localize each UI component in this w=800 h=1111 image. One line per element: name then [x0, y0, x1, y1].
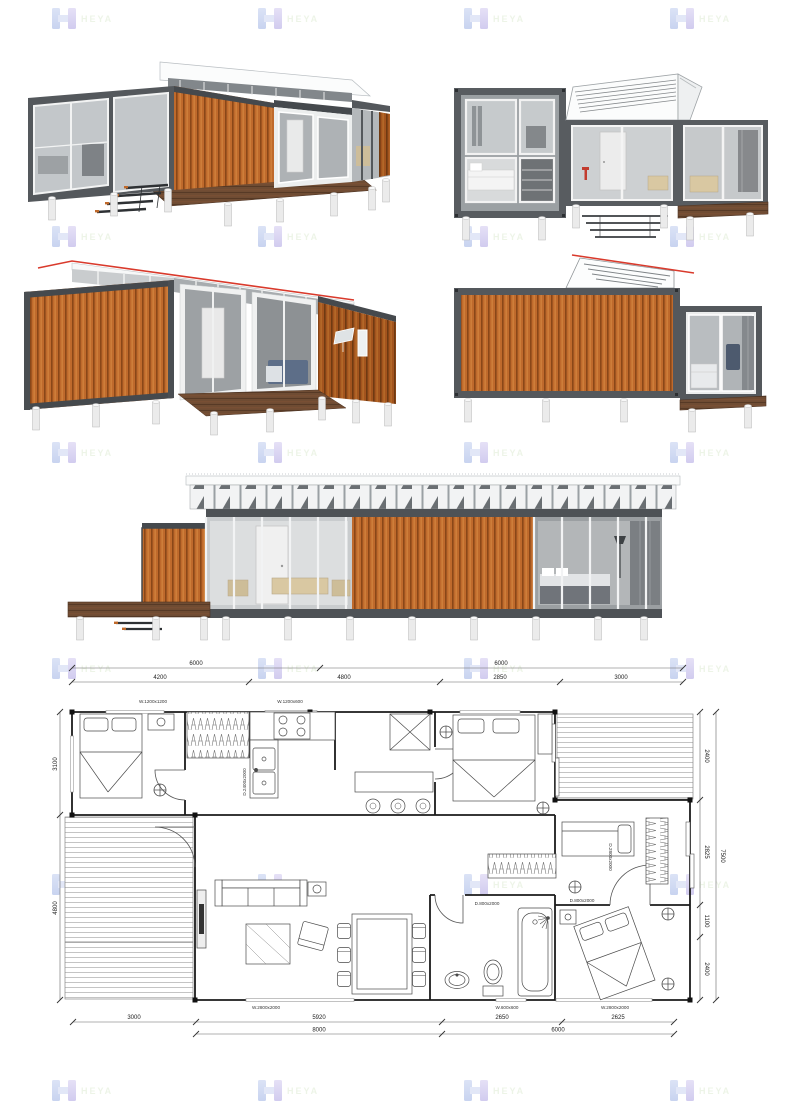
- dim-label: 5920: [312, 1015, 326, 1021]
- nightstand: [148, 714, 174, 730]
- window-label: W.2800x2000: [601, 1005, 630, 1010]
- toilet-tank: [483, 986, 503, 996]
- bedroom-3: [560, 907, 674, 1000]
- brand-logo-icon: [258, 442, 282, 463]
- clerestory-popup: [566, 255, 694, 288]
- dim-label: 2825: [703, 845, 709, 859]
- top-rail: [206, 509, 662, 517]
- brand-name: HEYA: [287, 448, 319, 458]
- sink-basin: [253, 772, 275, 794]
- brand-watermark: HEYA: [464, 8, 525, 29]
- right-glass-module: [680, 306, 762, 400]
- dim-label: 3100: [53, 757, 59, 771]
- brand-logo-icon: [464, 442, 488, 463]
- floor-plan: 6000 6000 4200 4800 2850 3000 3000 5920 …: [50, 652, 750, 1052]
- brand-logo-icon: [52, 8, 76, 29]
- ceiling-symbol: [662, 978, 674, 990]
- brand-name: HEYA: [81, 1086, 113, 1096]
- bathroom: [445, 908, 552, 996]
- bedroom-2: [440, 714, 552, 814]
- brand-logo-icon: [464, 1080, 488, 1101]
- brand-watermark: HEYA: [52, 442, 113, 463]
- deck: [68, 602, 210, 630]
- bottom-rail: [206, 609, 662, 618]
- wood-screen-section: [352, 517, 534, 609]
- dim-label: 4800: [53, 901, 59, 915]
- sofa: [215, 880, 307, 906]
- clerestory-roof: [186, 474, 680, 509]
- render-elevation-front-split: [450, 30, 782, 242]
- dim-label: 3000: [127, 1015, 141, 1021]
- stove: [274, 713, 310, 739]
- living-glass-section: [206, 517, 352, 609]
- dining-set: [338, 914, 426, 994]
- left-module: [454, 88, 566, 218]
- door-label: D.800x2000: [475, 901, 500, 906]
- dim-label: 2650: [495, 1015, 509, 1021]
- dim-label: 6000: [189, 661, 203, 667]
- brand-logo-icon: [258, 1080, 282, 1101]
- right-wood-wall: [318, 296, 396, 404]
- brand-name: HEYA: [493, 448, 525, 458]
- ceiling-symbol: [440, 726, 452, 738]
- render-perspective-rear-left: [16, 248, 402, 438]
- brand-logo-icon: [670, 442, 694, 463]
- ceiling-symbol: [537, 802, 549, 814]
- render-perspective-front-left: [22, 36, 394, 242]
- kitchen: [250, 712, 335, 798]
- ceiling-symbol: [662, 908, 674, 920]
- render-elevation-side-wood: [446, 246, 776, 442]
- slim-window: [358, 330, 367, 356]
- brand-name: HEYA: [287, 1086, 319, 1096]
- brand-watermark: HEYA: [52, 1080, 113, 1101]
- sink-basin: [253, 748, 275, 770]
- brand-watermark: HEYA: [258, 442, 319, 463]
- tv: [199, 904, 204, 934]
- dim-label: 1100: [703, 915, 709, 929]
- clerestory-roof: [566, 74, 702, 120]
- dim-label: 4200: [153, 675, 167, 681]
- dresser: [538, 714, 552, 754]
- dim-label: 2400: [703, 962, 709, 976]
- dim-label: 3000: [614, 675, 628, 681]
- island-counter: [355, 772, 433, 792]
- dim-label: 4800: [337, 675, 351, 681]
- dim-label: 2400: [703, 749, 709, 763]
- door-label: D.2800x2000: [608, 843, 613, 871]
- dim-label: 6000: [551, 1028, 565, 1034]
- pillow: [618, 825, 631, 853]
- brand-logo-icon: [670, 8, 694, 29]
- door-label: D.2400x2000: [242, 768, 247, 796]
- hall-closet: [488, 854, 556, 878]
- brand-name: HEYA: [699, 448, 731, 458]
- side-table: [308, 882, 326, 896]
- brand-watermark: HEYA: [464, 1080, 525, 1101]
- render-elevation-front-long: [60, 466, 740, 652]
- brand-name: HEYA: [81, 448, 113, 458]
- ceiling-symbol: [569, 881, 581, 893]
- brand-logo-icon: [52, 1080, 76, 1101]
- wardrobe-right: [646, 818, 668, 884]
- brand-name: HEYA: [81, 14, 113, 24]
- brand-watermark: HEYA: [670, 8, 731, 29]
- bedroom1-door: [155, 770, 185, 800]
- dining-table: [352, 914, 412, 994]
- brand-name: HEYA: [699, 1086, 731, 1096]
- nightstand: [560, 910, 576, 924]
- brand-watermark: HEYA: [258, 1080, 319, 1101]
- brand-logo-icon: [258, 8, 282, 29]
- piers: [77, 617, 648, 641]
- dim-label: 2850: [493, 675, 507, 681]
- brand-watermark: HEYA: [464, 442, 525, 463]
- faucet: [254, 768, 257, 771]
- bathroom-door: [435, 895, 463, 923]
- brand-name: HEYA: [493, 1086, 525, 1096]
- brand-logo-icon: [52, 442, 76, 463]
- wood-box: [454, 288, 680, 398]
- left-module: [28, 86, 274, 202]
- room-right-middle: [562, 818, 668, 893]
- middle-module: [566, 120, 678, 206]
- brand-watermark: HEYA: [670, 442, 731, 463]
- bedroom-1: [80, 714, 174, 798]
- ceiling-symbol: [154, 784, 166, 796]
- brand-name: HEYA: [493, 14, 525, 24]
- brand-logo-icon: [670, 1080, 694, 1101]
- bathtub: [518, 908, 552, 996]
- brand-watermark: HEYA: [52, 8, 113, 29]
- bedroom-glass-section: [534, 517, 662, 609]
- wardrobe-top: [187, 712, 249, 758]
- right-glass-wall: [352, 100, 390, 182]
- window-label: W.2800x2000: [252, 1005, 281, 1010]
- door-label: D.800x2000: [570, 898, 595, 903]
- right-module: [678, 120, 768, 206]
- brand-logo-icon: [464, 8, 488, 29]
- rug: [246, 924, 290, 964]
- brand-watermark: HEYA: [670, 1080, 731, 1101]
- armchair: [297, 921, 328, 951]
- room-right-door: [610, 865, 650, 905]
- window-label: W.1200x1200: [139, 699, 168, 704]
- steps: [582, 216, 668, 237]
- brand-name: HEYA: [287, 14, 319, 24]
- dim-label: 8000: [312, 1028, 326, 1034]
- entry-porch: [274, 100, 352, 188]
- living-room: [197, 880, 426, 994]
- dim-label: 2625: [611, 1015, 625, 1021]
- left-wood-module: [24, 280, 174, 410]
- brand-watermark: HEYA: [258, 8, 319, 29]
- window-label: W.1200x600: [277, 699, 303, 704]
- design-sheet: HEYA HEYA HEYA HEYA HEYA HEYA HEYA: [0, 0, 800, 1111]
- dim-label: 6000: [494, 661, 508, 667]
- dim-label: 7500: [719, 849, 725, 863]
- window-label: W.600x600: [496, 1005, 519, 1010]
- brand-name: HEYA: [699, 14, 731, 24]
